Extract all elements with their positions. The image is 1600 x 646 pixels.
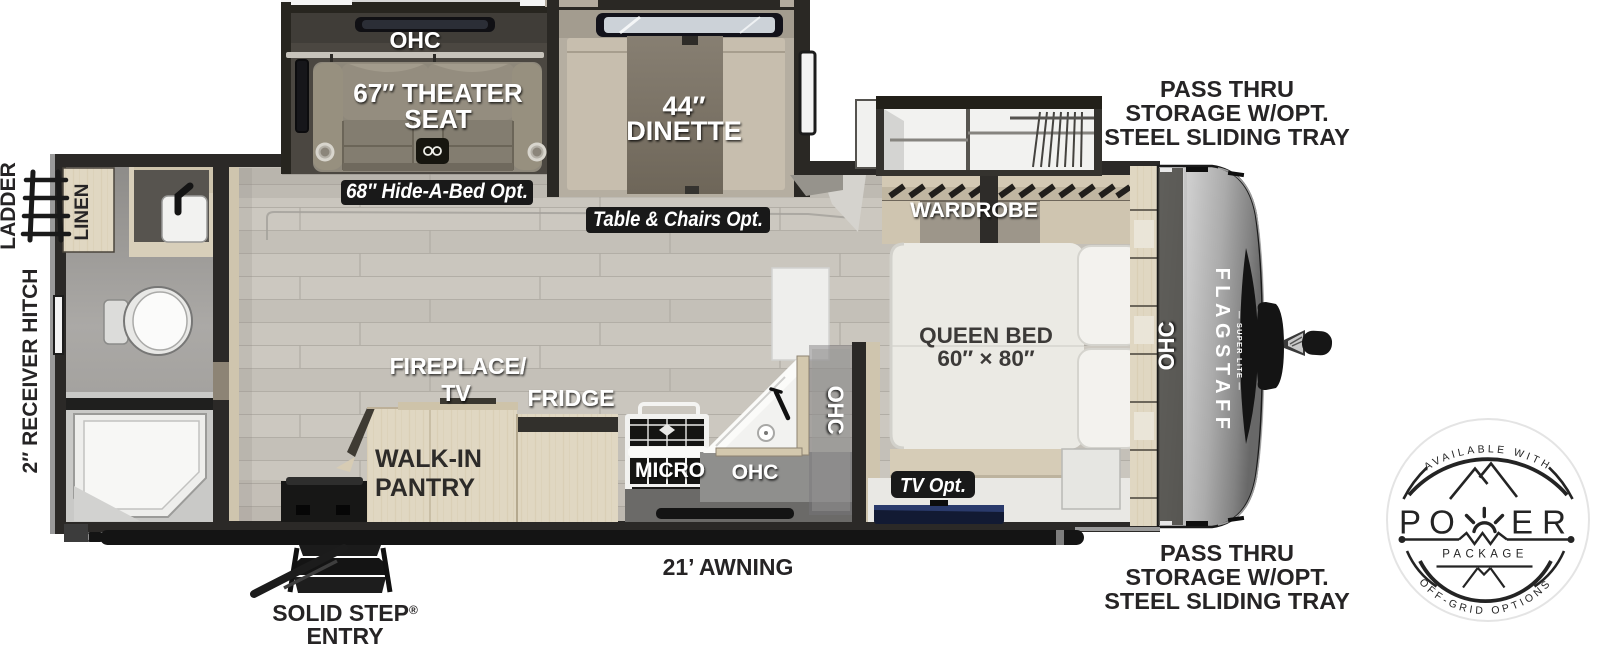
svg-text:P: P	[1399, 504, 1421, 541]
svg-text:TV Opt.: TV Opt.	[900, 475, 966, 497]
svg-text:FRIDGE: FRIDGE	[528, 385, 615, 411]
svg-text:PANTRY: PANTRY	[375, 474, 475, 502]
svg-text:MICRO: MICRO	[635, 459, 705, 482]
svg-text:E: E	[1511, 504, 1533, 541]
svg-text:PASS THRU: PASS THRU	[1160, 76, 1294, 102]
svg-text:ENTRY: ENTRY	[306, 623, 383, 646]
svg-text:2″ RECEIVER HITCH: 2″ RECEIVER HITCH	[19, 269, 42, 474]
svg-text:21’ AWNING: 21’ AWNING	[663, 554, 794, 580]
svg-text:OHC: OHC	[1154, 321, 1179, 370]
svg-text:QUEEN BED: QUEEN BED	[919, 323, 1053, 348]
svg-text:STEEL SLIDING TRAY: STEEL SLIDING TRAY	[1104, 588, 1350, 614]
svg-text:DINETTE: DINETTE	[626, 116, 742, 146]
svg-text:Table & Chairs Opt.: Table & Chairs Opt.	[593, 208, 763, 231]
svg-text:LADDER: LADDER	[0, 162, 20, 250]
svg-text:68″ Hide-A-Bed Opt.: 68″ Hide-A-Bed Opt.	[346, 180, 528, 203]
svg-text:FIREPLACE/: FIREPLACE/	[390, 353, 527, 379]
svg-text:OHC: OHC	[823, 386, 848, 435]
svg-text:STORAGE W/OPT.: STORAGE W/OPT.	[1125, 100, 1328, 126]
svg-text:WARDROBE: WARDROBE	[910, 198, 1038, 222]
svg-text:PASS THRU: PASS THRU	[1160, 540, 1294, 566]
svg-text:— SUPER LITE —: — SUPER LITE —	[1235, 311, 1244, 391]
svg-text:LINEN: LINEN	[72, 184, 93, 241]
svg-text:OHC: OHC	[389, 27, 440, 53]
svg-text:60″ × 80″: 60″ × 80″	[937, 346, 1034, 371]
svg-text:OHC: OHC	[732, 461, 779, 484]
svg-text:TV: TV	[441, 380, 471, 406]
svg-text:STORAGE W/OPT.: STORAGE W/OPT.	[1125, 564, 1328, 590]
svg-text:FLAGSTAFF: FLAGSTAFF	[1211, 268, 1233, 435]
svg-text:SEAT: SEAT	[404, 104, 472, 134]
svg-text:PACKAGE: PACKAGE	[1442, 549, 1528, 561]
svg-text:STEEL SLIDING TRAY: STEEL SLIDING TRAY	[1104, 124, 1350, 150]
svg-text:R: R	[1542, 504, 1566, 541]
svg-text:WALK-IN: WALK-IN	[375, 445, 482, 473]
svg-text:O: O	[1429, 504, 1455, 541]
